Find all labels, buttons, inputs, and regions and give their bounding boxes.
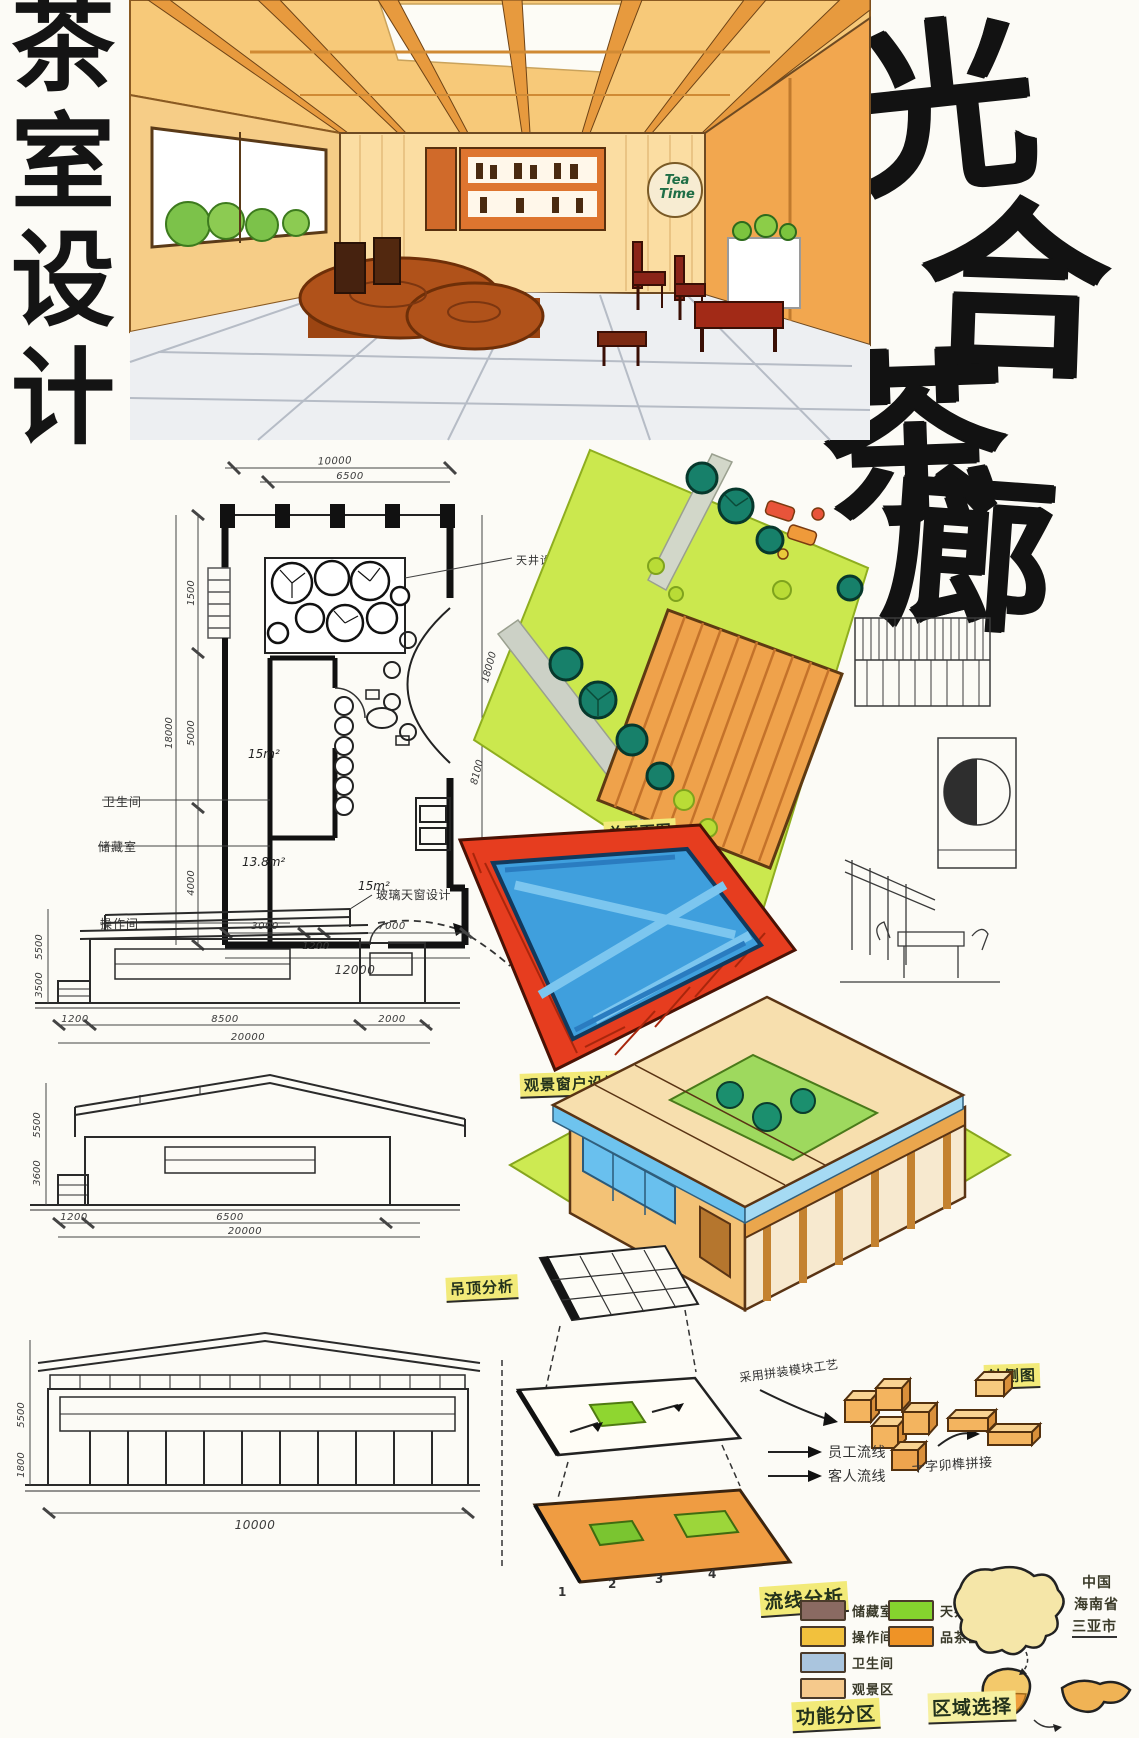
elevation-3: 5500 1800 10000: [10, 1285, 490, 1535]
flow-staff-label: 员工流线: [828, 1445, 886, 1461]
tea-time-sign-text: Tea Time: [650, 174, 704, 203]
plan-stairs: [208, 568, 230, 638]
legend-item-viewing: 观景区: [800, 1678, 894, 1699]
room-area-138: 13.8m²: [242, 855, 285, 869]
white-console: [728, 238, 800, 308]
dark-stool: [374, 238, 400, 284]
e1-dim-8500: 8500: [211, 1014, 238, 1025]
legend-swatch-storage: [800, 1600, 846, 1621]
layer-number-4: 4: [708, 1567, 717, 1581]
legend-item-storage: 储藏室: [800, 1600, 894, 1621]
e3-dim-10000: 10000: [235, 1518, 276, 1532]
e2-dim-6500: 6500: [216, 1212, 243, 1223]
map-label-country: 中国: [1082, 1572, 1112, 1592]
e3-dim-5500: 5500: [16, 1402, 27, 1427]
slat-screen-sketch: [855, 618, 990, 706]
plan-dim-5000: 5000: [186, 720, 197, 745]
e1-dim-20000: 20000: [231, 1032, 265, 1043]
elevation-1: 5500 3500 1200 8500 2000 20000 玻璃天窗设计: [20, 885, 470, 1055]
interior-perspective-rendering: [130, 0, 870, 440]
room-area-15a: 15m²: [248, 747, 280, 761]
dining-sketch: [840, 860, 1000, 982]
legend-label-bathroom: 卫生间: [852, 1653, 894, 1672]
map-china: [954, 1567, 1063, 1654]
legend-item-bathroom: 卫生间: [800, 1652, 894, 1673]
ceiling-analysis-label: 吊顶分析: [445, 1274, 518, 1303]
exploded-ground-slab: [535, 1490, 790, 1582]
plan-dim-1500: 1500: [186, 580, 197, 605]
dark-stool: [335, 243, 365, 293]
region-selection-label: 区域选择: [927, 1690, 1016, 1724]
exploded-roof-frame: [540, 1246, 698, 1320]
flow-legend: [768, 1446, 822, 1482]
skylight-note: 玻璃天窗设计: [376, 888, 451, 902]
zoning-label: 功能分区: [791, 1698, 881, 1734]
map-label-city: 三亚市: [1072, 1616, 1117, 1638]
e2-dim-20000: 20000: [228, 1226, 262, 1237]
assembly-arrow: [760, 1390, 830, 1420]
legend-swatch-courtyard: [888, 1600, 934, 1621]
round-window-sketch: [938, 738, 1016, 868]
e1-dim-5500: 5500: [34, 934, 45, 959]
side-title-char: 设: [11, 221, 115, 339]
plan-dim-10000: 10000: [318, 455, 353, 467]
e1-dim-2000: 2000: [378, 1014, 405, 1025]
layer-number-2: 2: [608, 1577, 617, 1591]
board-side-title: 茶 室 设 计: [2, 0, 124, 456]
legend-swatch-operation: [800, 1626, 846, 1647]
plan-dim-6500: 6500: [336, 471, 363, 482]
e1-dim-1200: 1200: [61, 1014, 88, 1025]
elevation-2: 5500 3600 1200 6500 20000: [20, 1055, 470, 1240]
map-sanya-zoom: [1062, 1681, 1130, 1712]
detail-sketches: [840, 610, 1025, 1000]
exploded-plan-slab: [518, 1378, 740, 1455]
joinery-arrow: [938, 1433, 972, 1446]
plan-label-bathroom: 卫生间: [103, 793, 142, 810]
plan-dim-18000-left: 18000: [164, 717, 175, 749]
side-title-char: 室: [11, 104, 115, 222]
presentation-board: 茶 室 设 计 光 合 茶 廊: [0, 0, 1139, 1738]
e1-dim-3500: 3500: [34, 972, 45, 997]
legend-swatch-bathroom: [800, 1652, 846, 1673]
layer-number-3: 3: [655, 1572, 664, 1586]
tea-cabinet: [426, 148, 456, 230]
e2-dim-3600: 3600: [32, 1160, 43, 1185]
map-label-province: 海南省: [1074, 1594, 1119, 1614]
side-title-char: 茶: [11, 0, 115, 104]
e2-dim-1200: 1200: [60, 1212, 87, 1223]
plan-label-storage: 储藏室: [98, 838, 137, 855]
legend-swatch-tea-area: [888, 1626, 934, 1647]
side-title-char: 计: [11, 339, 115, 457]
legend-item-operation: 操作间: [800, 1626, 894, 1647]
legend-label-viewing: 观景区: [852, 1679, 894, 1698]
e2-dim-5500: 5500: [32, 1112, 43, 1137]
flow-guest-label: 客人流线: [828, 1468, 886, 1485]
layer-number-1: 1: [558, 1585, 567, 1599]
assembly-note: 采用拼装模块工艺: [738, 1357, 839, 1385]
plan-courtyard: [265, 558, 409, 653]
legend-swatch-viewing: [800, 1678, 846, 1699]
e3-dim-1800: 1800: [16, 1452, 27, 1477]
